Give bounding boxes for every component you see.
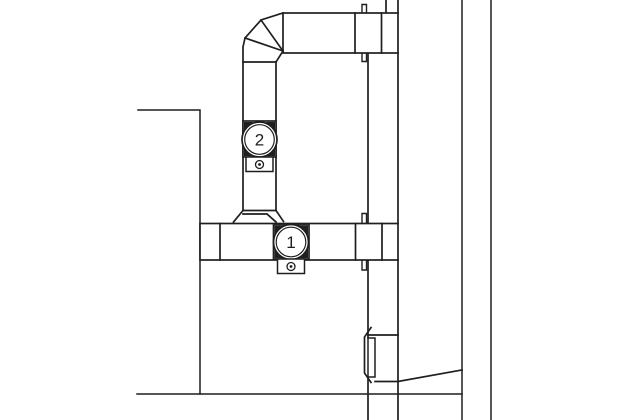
boot-gore-line <box>243 214 276 222</box>
flange-tab <box>362 260 367 270</box>
elbow-inner-corner <box>276 51 283 62</box>
boot-flare-left <box>234 211 244 223</box>
actuator-port-dot <box>290 265 293 268</box>
flange-tab <box>362 214 367 224</box>
boot-flare-right <box>276 211 284 222</box>
top-duct <box>283 13 398 53</box>
fitting-diagonal-line <box>398 370 462 382</box>
callout-label-2: 2 <box>255 131 264 150</box>
drawing-canvas: 2 1 <box>0 0 630 420</box>
damper-2: 2 <box>242 121 277 172</box>
elbow-gore-line <box>245 38 283 51</box>
actuator-port-dot <box>258 163 261 166</box>
left-wall <box>138 110 200 394</box>
duct-elevation-drawing: 2 1 <box>0 0 630 420</box>
fitting-slot <box>368 338 375 377</box>
left-wall-corner <box>138 110 200 394</box>
flange-tab <box>362 5 367 14</box>
duct-elbow <box>243 13 283 211</box>
right-wall <box>462 0 491 420</box>
flange-tab <box>362 53 367 62</box>
boot-transition <box>234 211 284 223</box>
callout-label-1: 1 <box>286 233 295 252</box>
damper-1: 1 <box>274 225 310 274</box>
